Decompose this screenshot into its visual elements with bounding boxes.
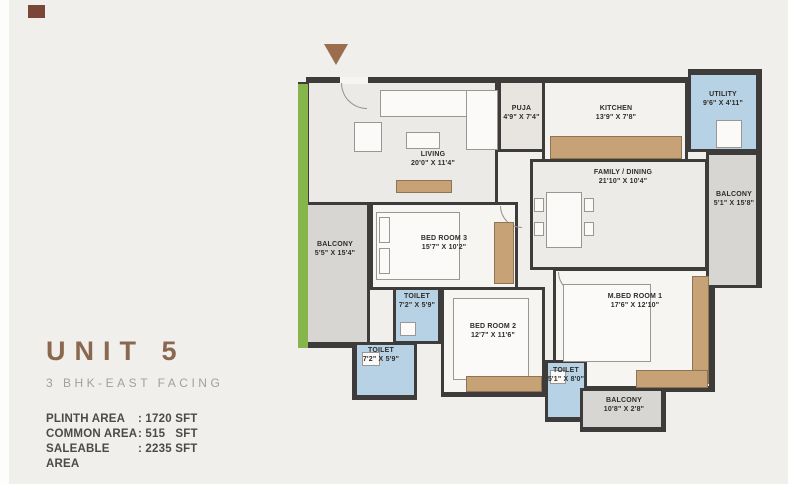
room-label-puja: PUJA 4'9" X 7'4"	[498, 104, 545, 122]
dining-chair	[534, 198, 544, 212]
dining-chair	[584, 198, 594, 212]
room-balcony-left	[298, 202, 370, 348]
area-table: PLINTH AREA : 1720 SFT COMMON AREA : 515…	[46, 412, 276, 472]
room-label-bedroom-2: BED ROOM 2 12'7" X 11'6"	[451, 322, 535, 340]
dining-chair	[584, 222, 594, 236]
area-label: PLINTH AREA	[46, 412, 138, 427]
room-label-kitchen: KITCHEN 13'9" X 7'8"	[580, 104, 652, 122]
room-balcony-right	[706, 152, 762, 288]
area-value: : 2235 SFT	[138, 442, 198, 472]
washing-machine	[716, 120, 742, 148]
area-value: : 515 SFT	[138, 427, 198, 442]
page-edge-strip	[0, 0, 9, 484]
area-row-saleable: SALEABLE AREA : 2235 SFT	[46, 442, 276, 472]
room-label-bedroom-3: BED ROOM 3 15'7" X 10'2"	[388, 234, 500, 252]
room-label-master-bedroom: M.BED ROOM 1 17'6" X 12'10"	[580, 292, 690, 310]
unit-info-block: UNIT 5 3 BHK-EAST FACING PLINTH AREA : 1…	[46, 336, 276, 472]
wardrobe	[466, 376, 542, 392]
sofa-chaise	[466, 90, 498, 150]
toilet-fixture	[400, 322, 416, 336]
wardrobe	[692, 276, 709, 384]
room-label-balcony-bottom: BALCONY 10'8" X 2'8"	[586, 396, 662, 414]
room-label-utility: UTILITY 9'6" X 4'11"	[688, 90, 758, 108]
area-value: : 1720 SFT	[138, 412, 198, 427]
entry-direction-arrow	[324, 44, 348, 65]
balcony-green-edge	[298, 82, 308, 348]
dining-chair	[534, 222, 544, 236]
kitchen-counter	[550, 136, 682, 159]
wardrobe	[494, 222, 514, 284]
brand-logo-square	[28, 5, 45, 18]
area-row-common: COMMON AREA : 515 SFT	[46, 427, 276, 442]
dining-table	[546, 192, 582, 248]
tv-console	[396, 180, 452, 193]
area-label: SALEABLE AREA	[46, 442, 138, 472]
floor-plan-brochure: UNIT 5 3 BHK-EAST FACING PLINTH AREA : 1…	[0, 0, 788, 484]
unit-subtitle: 3 BHK-EAST FACING	[46, 376, 276, 390]
room-label-balcony-right: BALCONY 5'1" X 15'8"	[709, 190, 759, 208]
area-row-plinth: PLINTH AREA : 1720 SFT	[46, 412, 276, 427]
unit-title: UNIT 5	[46, 336, 276, 367]
room-label-living: LIVING 20'0" X 11'4"	[388, 150, 478, 168]
floor-plan: LIVING 20'0" X 11'4" PUJA 4'9" X 7'4" KI…	[288, 40, 766, 440]
area-label: COMMON AREA	[46, 427, 138, 442]
room-label-toilet-top: TOILET 7'2" X 5'9"	[395, 292, 439, 310]
wardrobe	[636, 370, 708, 388]
room-label-balcony-left: BALCONY 5'5" X 15'4"	[304, 240, 366, 258]
room-label-toilet-bottom: TOILET 5'1" X 8'0"	[546, 366, 586, 384]
room-label-toilet-left: TOILET 7'2" X 5'9"	[356, 346, 406, 364]
room-label-family-dining: FAMILY / DINING 21'10" X 10'4"	[576, 168, 670, 186]
armchair	[354, 122, 382, 152]
coffee-table	[406, 132, 440, 149]
